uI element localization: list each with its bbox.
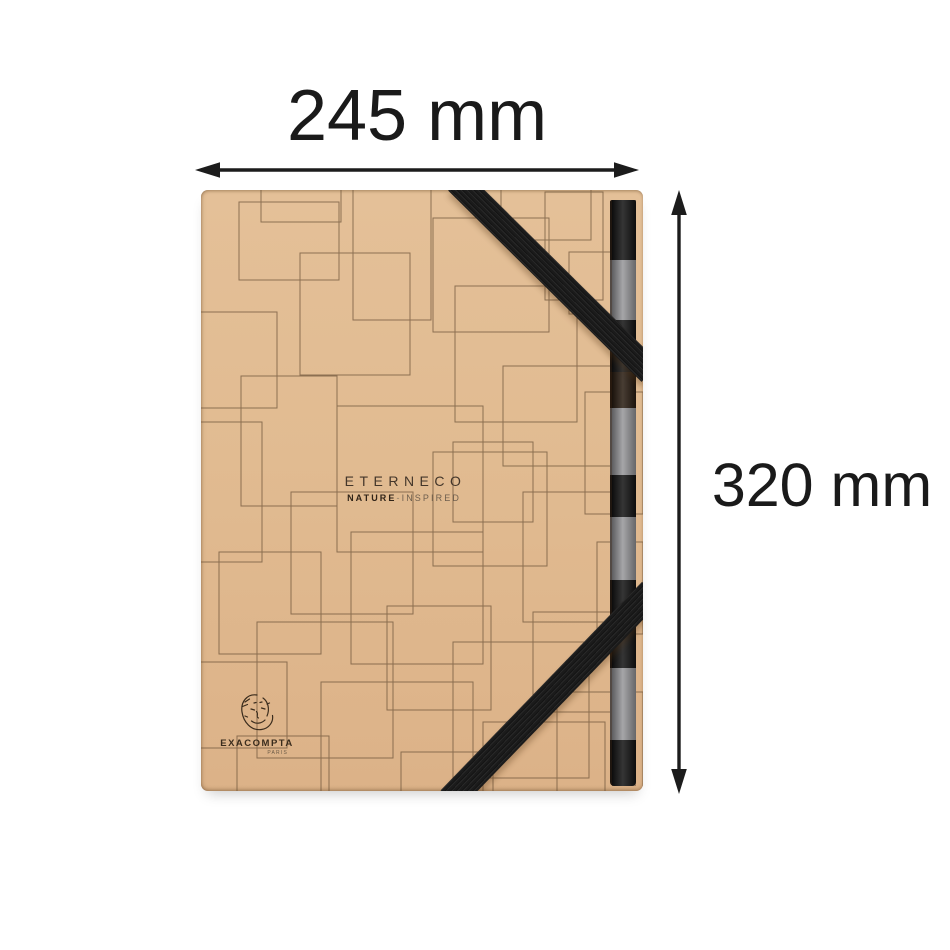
width-dimension-label: 245 mm [193,80,641,152]
tagline-bold: NATURE [347,493,396,503]
product-dimension-image: 245 mm 320 mm [0,0,950,950]
divider-tab-strip [610,200,636,786]
brand-wordmark: ETERNECO [345,473,467,489]
height-arrow-icon [664,188,694,796]
height-dimension-label: 320 mm [692,455,950,516]
exacompta-face-sketch-icon [236,692,278,736]
exacompta-logo: EXACOMPTA PARIS [225,692,289,756]
brand-block: ETERNECO NATURE-INSPIRED [341,473,465,503]
folder: ETERNECO NATURE-INSPIRED EXACOMPTA PARIS [201,190,643,791]
exacompta-city-label: PARIS [267,750,288,756]
width-arrow-icon [193,157,641,183]
tagline-light: INSPIRED [402,493,461,503]
brand-tagline: NATURE-INSPIRED [347,493,461,503]
exacompta-wordmark: EXACOMPTA [220,738,294,749]
